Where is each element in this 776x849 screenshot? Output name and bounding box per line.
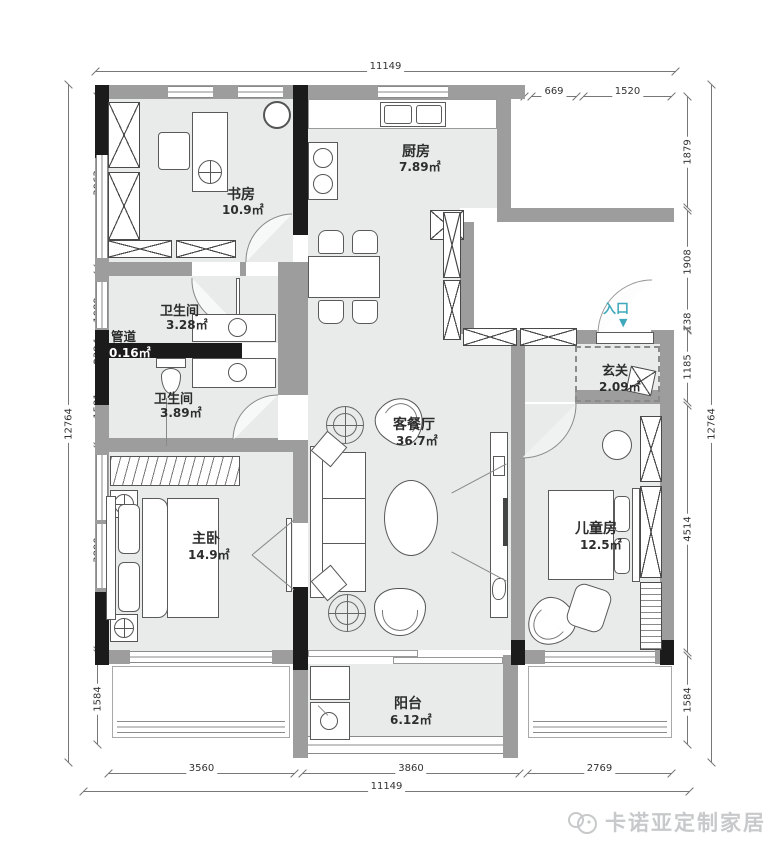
dim-right-total: 12764 — [711, 85, 712, 762]
balcony-cabinet — [310, 666, 350, 700]
washer-drum — [320, 712, 338, 730]
dim-top-seg: 1520 — [583, 86, 672, 97]
room-label-entry: 玄关 — [602, 360, 628, 379]
cabinet — [176, 240, 236, 258]
dim-value: 1584 — [683, 684, 694, 715]
desk-shelf — [640, 582, 662, 650]
dim-right-seg: 1584 — [687, 656, 688, 744]
wall — [497, 208, 674, 222]
dim-value: 11149 — [368, 781, 406, 792]
dining-chair — [318, 300, 344, 324]
room-area-study: 10.9㎡ — [222, 201, 264, 218]
lamp-symbol — [114, 618, 134, 638]
dim-right-seg: 1908 — [687, 211, 688, 313]
column — [293, 85, 308, 235]
wall — [651, 330, 674, 344]
window — [238, 86, 283, 98]
dim-value: 1879 — [683, 136, 694, 167]
wall — [95, 438, 278, 452]
dim-bottom-seg: 2769 — [527, 763, 672, 774]
wall — [272, 650, 293, 664]
room-area-bath2: 3.89㎡ — [160, 404, 202, 421]
sliding-door — [308, 650, 418, 657]
cabinet — [443, 212, 461, 278]
entrance-arrow-icon: ▼ — [619, 316, 627, 329]
room-label-master: 主卧 — [192, 528, 220, 548]
room-area-bath1: 3.28㎡ — [166, 316, 208, 333]
dim-value: 669 — [541, 86, 566, 97]
ceiling-fan-symbol — [328, 594, 366, 632]
tv-screen — [503, 498, 508, 546]
room-label-duct: 管道 — [111, 326, 136, 345]
dim-right-seg: 1185 — [687, 331, 688, 402]
floor-plan-canvas: 11149 3560 4200 669 1520 3560 3860 2769 … — [0, 0, 776, 849]
dim-value: 3560 — [186, 763, 217, 774]
dim-left-total: 12764 — [68, 85, 69, 762]
wall — [278, 262, 308, 395]
wardrobe — [640, 486, 662, 578]
wardrobe — [108, 102, 140, 168]
dim-value: 12764 — [707, 405, 718, 443]
column — [95, 85, 109, 158]
kids-chair — [602, 430, 632, 460]
toilet-tank — [156, 358, 186, 368]
wall — [293, 452, 308, 523]
wardrobe — [108, 172, 140, 240]
bed-pillow — [118, 562, 140, 612]
bed-blanket — [142, 498, 168, 618]
wall — [293, 664, 308, 758]
dining-chair — [352, 300, 378, 324]
window — [545, 651, 655, 663]
wall — [95, 85, 525, 99]
room-label-living: 客餐厅 — [393, 414, 435, 434]
bay-window — [112, 666, 290, 738]
entrance-door-leaf — [596, 332, 654, 344]
bay-window — [528, 666, 672, 738]
window — [130, 651, 272, 663]
dim-top-seg: 669 — [531, 86, 577, 97]
bed-headboard — [106, 496, 116, 620]
dim-value: 4514 — [683, 513, 694, 544]
study-door-swing — [246, 214, 292, 262]
brand-logo-icon — [565, 809, 599, 835]
column — [660, 640, 674, 665]
plant — [492, 578, 506, 600]
bath2-door-swing — [233, 395, 278, 440]
wall — [503, 655, 518, 758]
room-area-duct: 0.16㎡ — [109, 344, 151, 361]
dim-value: 1185 — [683, 351, 694, 382]
window — [96, 282, 108, 328]
dim-right-seg: 138 — [687, 315, 688, 329]
wardrobe — [640, 416, 662, 482]
window — [533, 721, 667, 733]
room-area-kids: 12.5㎡ — [580, 536, 622, 553]
watermark: 卡诺亚定制家居 — [565, 807, 766, 837]
dim-right-seg: 4514 — [687, 406, 688, 652]
desk-chair — [158, 132, 190, 170]
cabinet — [463, 328, 517, 346]
room-label-kids: 儿童房 — [575, 518, 617, 538]
dim-right-seg: 1879 — [687, 97, 688, 207]
sliding-door — [393, 657, 503, 664]
wall — [240, 262, 246, 276]
column — [293, 587, 308, 670]
dining-chair — [318, 230, 344, 254]
room-area-balcony: 6.12㎡ — [390, 711, 432, 728]
window — [96, 155, 108, 258]
dim-value: 11149 — [367, 61, 405, 72]
dim-bottom-total: 11149 — [83, 781, 690, 792]
room-area-master: 14.9㎡ — [188, 546, 230, 563]
dim-value: 1520 — [612, 86, 643, 97]
cabinet — [108, 240, 172, 258]
dim-value: 2769 — [584, 763, 615, 774]
kids-door-swing — [522, 404, 576, 458]
dim-value: 3860 — [395, 763, 426, 774]
room-area-living: 36.7㎡ — [396, 432, 438, 449]
master-door-swing — [252, 518, 294, 592]
dim-value: 12764 — [64, 405, 75, 443]
desk-lamp-symbol — [198, 160, 222, 184]
cabinet — [520, 328, 577, 346]
ceiling-light — [263, 101, 291, 129]
burner — [313, 148, 333, 168]
watermark-text: 卡诺亚定制家居 — [605, 807, 766, 837]
bed-headboard — [632, 488, 640, 582]
window — [378, 86, 448, 98]
column — [511, 640, 525, 665]
wall — [95, 262, 192, 276]
column — [95, 330, 109, 405]
wardrobe-hanging — [110, 456, 240, 486]
sink-basin — [416, 105, 442, 124]
burner — [313, 174, 333, 194]
dim-bottom-seg: 3860 — [302, 763, 520, 774]
wash-basin — [228, 318, 247, 337]
window — [168, 86, 213, 98]
room-label-balcony: 阳台 — [394, 693, 422, 713]
wall — [511, 330, 525, 640]
dim-left-seg: 1584 — [97, 654, 98, 744]
sink-basin — [384, 105, 412, 124]
coffee-table — [384, 480, 438, 556]
cabinet — [443, 280, 461, 340]
dim-value: 1584 — [93, 683, 104, 714]
room-area-entry: 2.09㎡ — [599, 378, 641, 395]
room-area-kitchen: 7.89㎡ — [399, 158, 441, 175]
wall — [278, 440, 308, 452]
entrance-label: 入口 — [603, 298, 629, 317]
bed-pillow — [118, 504, 140, 554]
dining-table — [308, 256, 380, 298]
window — [117, 721, 285, 733]
wash-basin — [228, 363, 247, 382]
dim-bottom-seg: 3560 — [108, 763, 295, 774]
dim-value: 1908 — [683, 246, 694, 277]
wall — [497, 85, 511, 222]
dim-top-total: 11149 — [95, 61, 676, 72]
dining-chair — [352, 230, 378, 254]
wall — [660, 344, 674, 660]
